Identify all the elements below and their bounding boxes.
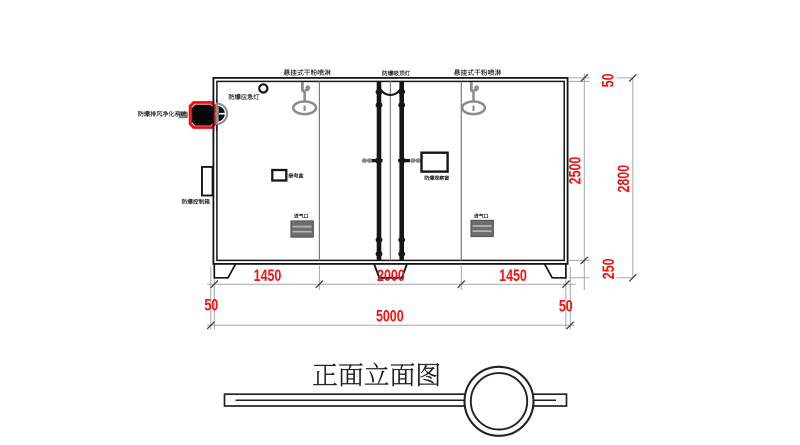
svg-text:2800: 2800 (615, 165, 633, 193)
svg-text:1450: 1450 (254, 268, 282, 286)
svg-text:50: 50 (559, 298, 573, 316)
svg-text:1450: 1450 (499, 267, 527, 285)
svg-text:2500: 2500 (567, 157, 585, 185)
svg-text:5000: 5000 (376, 308, 404, 326)
svg-text:2000: 2000 (377, 267, 405, 285)
svg-text:50: 50 (600, 73, 618, 87)
svg-text:250: 250 (600, 258, 618, 279)
svg-text:50: 50 (204, 297, 218, 315)
